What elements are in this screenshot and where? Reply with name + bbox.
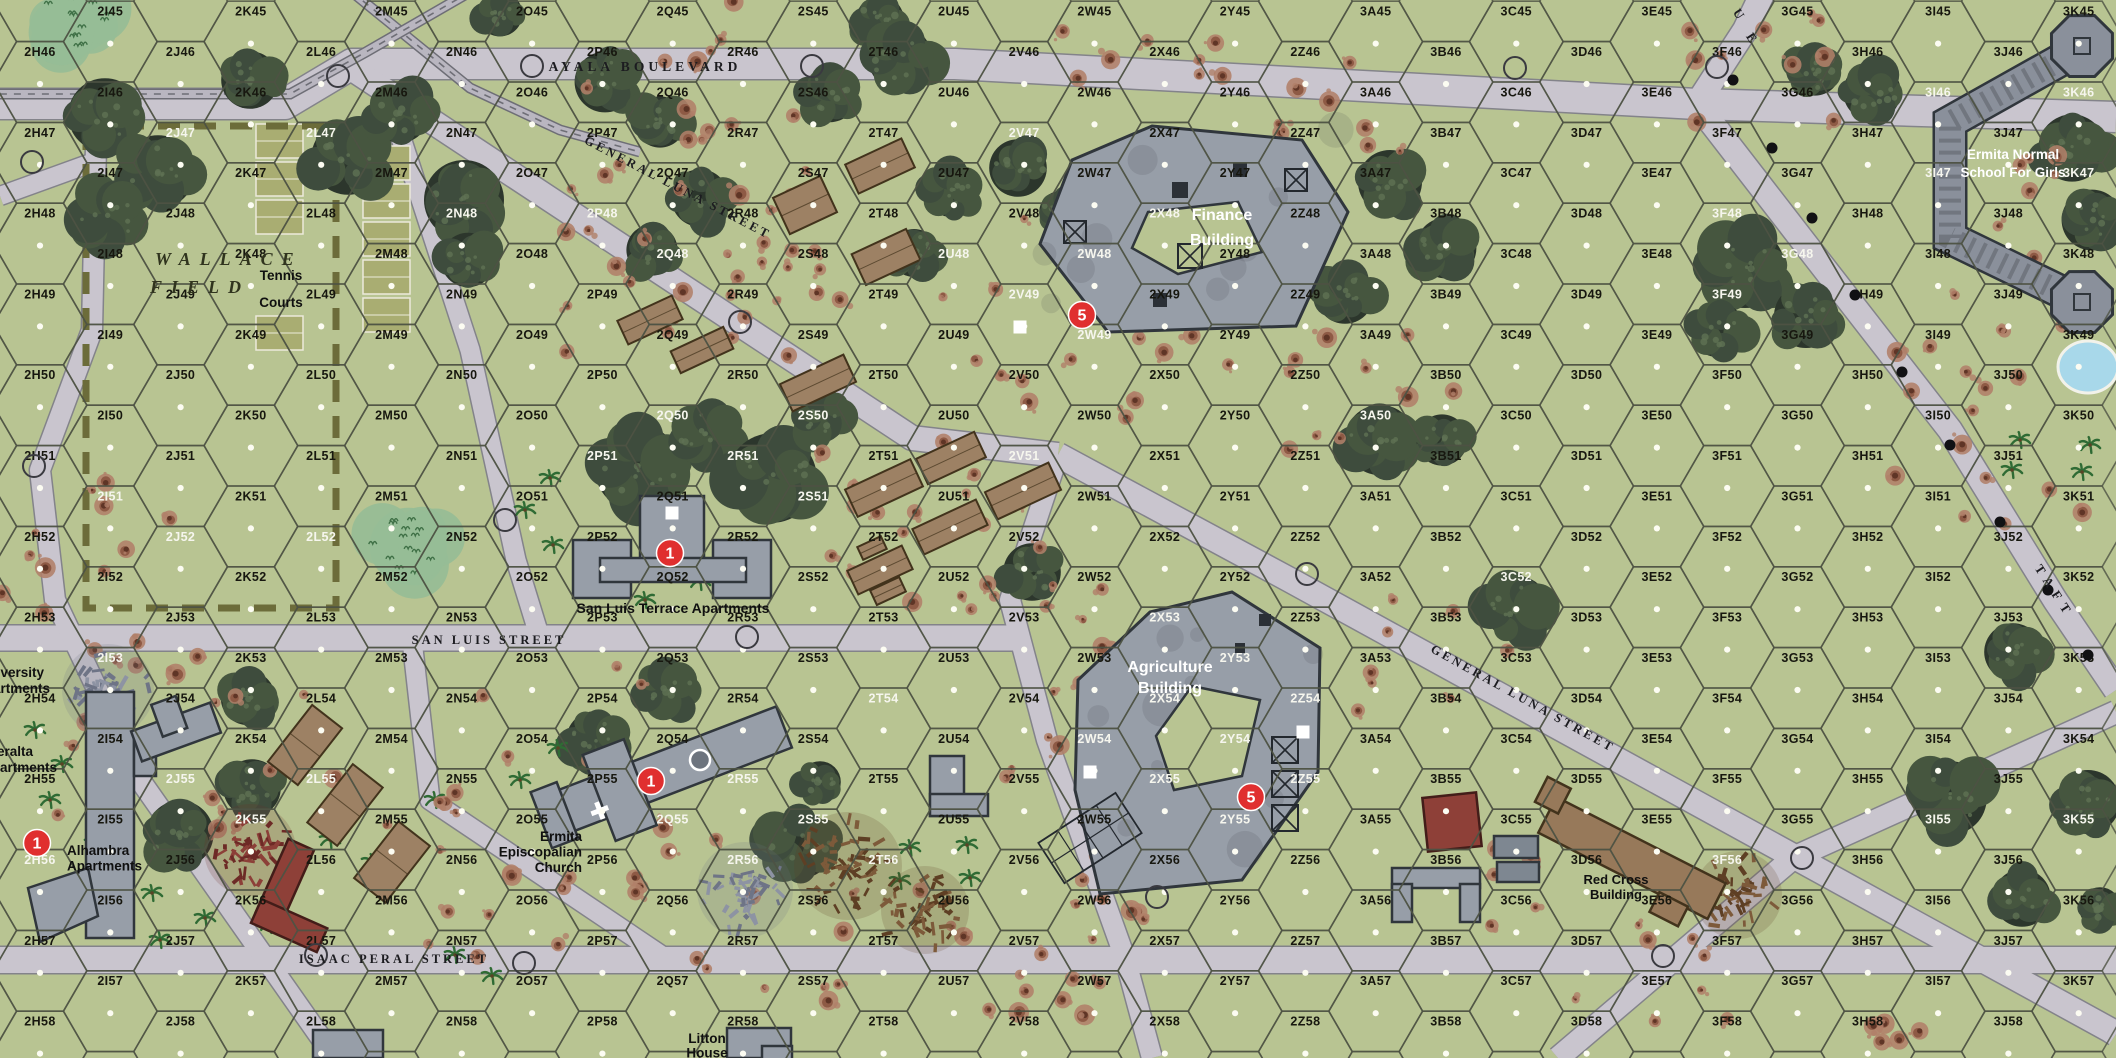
- tree-highlight: [2090, 217, 2097, 224]
- hex-center-dot: [318, 889, 324, 895]
- hex-label-3K54: 3K54: [2063, 732, 2094, 746]
- tree-highlight: [1393, 437, 1398, 442]
- hex-center-dot: [1443, 162, 1449, 168]
- litton-house[interactable]: [727, 1028, 792, 1058]
- school-label: School For Girls: [1960, 165, 2065, 180]
- shell-speck: [1759, 37, 1765, 43]
- hex-label-2N51: 2N51: [446, 449, 477, 463]
- hex-center-dot: [1794, 768, 1800, 774]
- hex-center-dot: [1443, 485, 1449, 491]
- hex-label-3I46: 3I46: [1925, 85, 1951, 99]
- stone-mottle: [1190, 627, 1204, 641]
- tree-highlight: [1343, 288, 1349, 294]
- tree-highlight: [2007, 659, 2014, 666]
- hex-center-dot: [599, 566, 605, 572]
- shell-speck: [1914, 392, 1918, 396]
- rubble-bit: [111, 682, 118, 684]
- tree-highlight: [265, 793, 270, 798]
- tree-highlight: [904, 72, 909, 77]
- shell-speck: [852, 479, 857, 484]
- hex-center-dot: [1443, 970, 1449, 976]
- hex-center-dot: [1443, 566, 1449, 572]
- shell-core: [1076, 76, 1081, 81]
- hex-label-3H58: 3H58: [1852, 1015, 1883, 1029]
- hex-center-dot: [1162, 485, 1168, 491]
- rubble-bit: [738, 882, 750, 884]
- hex-center-dot: [1162, 727, 1168, 733]
- tree-highlight: [818, 779, 822, 783]
- hex-label-3I50: 3I50: [1925, 409, 1951, 423]
- hex-center-dot: [1584, 162, 1590, 168]
- hex-label-3H53: 3H53: [1852, 611, 1883, 625]
- hex-center-dot: [388, 41, 394, 47]
- black-dot-icon: [1728, 75, 1739, 86]
- hex-label-2O57: 2O57: [516, 974, 548, 988]
- tree-foliage: [180, 810, 206, 836]
- hex-center-dot: [459, 889, 465, 895]
- hex-center-dot: [740, 485, 746, 491]
- hex-label-3H57: 3H57: [1852, 934, 1883, 948]
- objective-marker-1[interactable]: 1: [24, 830, 51, 857]
- shell-speck: [1359, 716, 1363, 720]
- hex-label-2Y52: 2Y52: [1220, 570, 1251, 584]
- hex-label-2T52: 2T52: [869, 530, 899, 544]
- hex-center-dot: [740, 243, 746, 249]
- hex-label-2H52: 2H52: [24, 530, 55, 544]
- hex-center-dot: [670, 202, 676, 208]
- tree-highlight: [763, 479, 769, 485]
- hex-label-3B48: 3B48: [1430, 207, 1461, 221]
- hex-label-3A53: 3A53: [1360, 651, 1391, 665]
- hex-center-dot: [2005, 1051, 2011, 1057]
- church-label: Church: [535, 860, 582, 875]
- hex-label-2U45: 2U45: [938, 5, 969, 19]
- shell-speck: [1887, 1042, 1893, 1048]
- rubble-bit: [744, 905, 746, 913]
- hex-center-dot: [37, 1051, 43, 1057]
- tree-highlight: [594, 739, 598, 743]
- objective-marker-5[interactable]: 5: [1238, 784, 1265, 811]
- tree-highlight: [1033, 575, 1037, 579]
- hex-center-dot: [529, 1010, 535, 1016]
- tree-highlight: [2020, 643, 2024, 647]
- shell-speck: [622, 170, 626, 174]
- shell-speck: [1815, 52, 1821, 58]
- shell-core: [1996, 224, 1999, 227]
- tree-highlight: [1963, 791, 1969, 797]
- hex-center-dot: [1162, 970, 1168, 976]
- map-canvas[interactable]: 2H462H472H482H492H502H512H522H532H542H55…: [0, 0, 2116, 1058]
- shell-speck: [868, 516, 872, 520]
- shell-speck: [784, 258, 790, 264]
- hex-label-3H48: 3H48: [1852, 207, 1883, 221]
- hex-label-3I49: 3I49: [1925, 328, 1951, 342]
- hex-center-dot: [1724, 485, 1730, 491]
- shell-core: [972, 473, 976, 477]
- hex-center-dot: [1162, 1051, 1168, 1057]
- shell-core: [1822, 54, 1828, 60]
- tree-highlight: [170, 829, 176, 835]
- tree-highlight: [1877, 90, 1884, 97]
- hex-label-2Q50: 2Q50: [657, 409, 689, 423]
- shell-core: [1896, 1037, 1902, 1043]
- shell-core: [790, 248, 795, 253]
- shell-core: [0, 590, 5, 595]
- hex-label-2S50: 2S50: [798, 409, 829, 423]
- white-square-icon: [1014, 321, 1027, 334]
- shell-hole-icon: [970, 354, 983, 367]
- tree-highlight: [2034, 649, 2040, 655]
- tree-highlight: [833, 414, 837, 418]
- tree-highlight: [2084, 138, 2091, 145]
- tree-highlight: [808, 787, 815, 794]
- shell-hole-icon: [677, 99, 697, 119]
- hex-center-dot: [37, 566, 43, 572]
- shell-core: [1534, 906, 1537, 909]
- wallace-field-label: WALLACE: [155, 249, 303, 269]
- shell-speck: [834, 1002, 841, 1009]
- hex-label-2W46: 2W46: [1077, 85, 1111, 99]
- tree-highlight: [965, 184, 970, 189]
- rubble-bit: [244, 867, 245, 881]
- shell-speck: [1961, 512, 1966, 517]
- hex-center-dot: [1865, 243, 1871, 249]
- stone-mottle: [1033, 242, 1057, 266]
- white-square-icon: [1084, 766, 1097, 779]
- hex-center-dot: [1373, 364, 1379, 370]
- redcross-label: Red Cross: [1583, 872, 1648, 887]
- shell-core: [1293, 358, 1298, 363]
- hex-center-dot: [1091, 41, 1097, 47]
- objective-marker-1[interactable]: 1: [657, 540, 684, 567]
- shell-core: [509, 873, 515, 879]
- shell-core: [1909, 388, 1914, 393]
- hex-label-2T53: 2T53: [869, 611, 899, 625]
- shell-hole-icon: [117, 540, 135, 558]
- tree-highlight: [1493, 607, 1497, 611]
- shell-core: [91, 489, 94, 492]
- tree-highlight: [447, 267, 454, 274]
- agriculture-label: Building: [1138, 680, 1202, 697]
- hex-center-dot: [810, 121, 816, 127]
- shell-speck: [791, 117, 796, 122]
- shell-speck: [132, 633, 138, 639]
- objects-3c55[interactable]: [1494, 836, 1539, 882]
- shell-core: [1081, 618, 1084, 621]
- hex-label-2X49: 2X49: [1149, 287, 1180, 301]
- hex-label-2N46: 2N46: [446, 45, 477, 59]
- hex-label-2Q45: 2Q45: [657, 5, 689, 19]
- hex-label-2P49: 2P49: [587, 287, 618, 301]
- shell-core: [826, 998, 832, 1004]
- hex-label-2M50: 2M50: [375, 409, 408, 423]
- tree-highlight: [1367, 425, 1374, 432]
- tree-highlight: [1762, 249, 1766, 253]
- tree-highlight: [1811, 67, 1814, 70]
- hex-label-3K52: 3K52: [2063, 570, 2094, 584]
- palm-trunk: [548, 476, 552, 480]
- hex-label-2T48: 2T48: [869, 207, 899, 221]
- rubble-bit: [896, 905, 906, 906]
- hex-label-2U55: 2U55: [938, 813, 969, 827]
- hex-center-dot: [2076, 929, 2082, 935]
- hex-center-dot: [1865, 485, 1871, 491]
- shell-core: [1691, 937, 1695, 941]
- black-dot-icon: [1897, 367, 1908, 378]
- hex-label-3E47: 3E47: [1642, 166, 1673, 180]
- hex-label-3G51: 3G51: [1781, 489, 1813, 503]
- rubble-bit: [858, 839, 870, 840]
- hex-center-dot: [459, 647, 465, 653]
- tree-highlight: [789, 855, 795, 861]
- hex-center-dot: [1584, 485, 1590, 491]
- hex-label-2N56: 2N56: [446, 853, 477, 867]
- hex-center-dot: [1794, 606, 1800, 612]
- hex-label-3F50: 3F50: [1712, 368, 1742, 382]
- shell-speck: [1492, 927, 1498, 933]
- hex-center-dot: [1865, 162, 1871, 168]
- hex-label-2Y51: 2Y51: [1220, 489, 1251, 503]
- hex-center-dot: [2076, 121, 2082, 127]
- hex-center-dot: [1232, 525, 1238, 531]
- tree-highlight: [126, 229, 130, 233]
- shell-speck: [1032, 410, 1036, 414]
- hex-center-dot: [1794, 202, 1800, 208]
- shell-speck: [1369, 667, 1373, 671]
- hex-label-3E50: 3E50: [1642, 409, 1673, 423]
- hex-center-dot: [1021, 808, 1027, 814]
- shell-speck: [1131, 391, 1136, 396]
- tree-highlight: [1732, 321, 1736, 325]
- hex-label-3H52: 3H52: [1852, 530, 1883, 544]
- shell-core: [1399, 149, 1401, 151]
- hex-center-dot: [599, 970, 605, 976]
- hex-label-3A45: 3A45: [1360, 5, 1391, 19]
- hex-label-2Y56: 2Y56: [1220, 893, 1251, 907]
- university-label2: Apartments: [0, 681, 50, 696]
- hex-center-dot: [2005, 323, 2011, 329]
- hex-label-2H47: 2H47: [24, 126, 55, 140]
- hex-label-2P58: 2P58: [587, 1015, 618, 1029]
- hex-center-dot: [599, 647, 605, 653]
- tree-highlight: [708, 437, 713, 442]
- hex-label-3D51: 3D51: [1571, 449, 1602, 463]
- shell-core: [829, 554, 833, 558]
- shell-speck: [700, 138, 705, 143]
- hex-label-2J48: 2J48: [166, 207, 195, 221]
- hex-center-dot: [881, 323, 887, 329]
- tree-highlight: [794, 469, 798, 473]
- hex-center-dot: [529, 364, 535, 370]
- hex-label-2Y54: 2Y54: [1220, 732, 1251, 746]
- objective-marker-1[interactable]: 1: [638, 768, 665, 795]
- shell-speck: [238, 699, 244, 705]
- shell-speck: [1395, 386, 1402, 393]
- rubble-bit: [944, 911, 949, 914]
- black-dot-icon: [1945, 440, 1956, 451]
- tree-highlight: [80, 217, 84, 221]
- hex-center-dot: [2005, 647, 2011, 653]
- objective-marker-5[interactable]: 5: [1069, 302, 1096, 329]
- hex-label-3I57: 3I57: [1925, 974, 1951, 988]
- hex-label-2K53: 2K53: [235, 651, 266, 665]
- hex-label-2W49: 2W49: [1077, 328, 1111, 342]
- hex-label-2P57: 2P57: [587, 934, 618, 948]
- hex-label-2T58: 2T58: [869, 1015, 899, 1029]
- hex-label-3F51: 3F51: [1712, 449, 1742, 463]
- shell-speck: [2045, 494, 2049, 498]
- tree-highlight: [1003, 157, 1010, 164]
- tree-highlight: [113, 123, 118, 128]
- shell-speck: [1690, 123, 1694, 127]
- hex-label-3D56: 3D56: [1571, 853, 1602, 867]
- tree-highlight: [1495, 596, 1501, 602]
- hex-center-dot: [178, 81, 184, 87]
- hex-center-dot: [810, 768, 816, 774]
- shell-speck: [758, 247, 765, 254]
- hex-center-dot: [881, 727, 887, 733]
- hex-center-dot: [1302, 323, 1308, 329]
- hex-label-2X56: 2X56: [1149, 853, 1180, 867]
- hex-label-3C48: 3C48: [1501, 247, 1532, 261]
- hex-center-dot: [37, 727, 43, 733]
- hex-center-dot: [1302, 647, 1308, 653]
- hex-center-dot: [248, 525, 254, 531]
- hex-center-dot: [1654, 445, 1660, 451]
- shell-core: [1364, 366, 1367, 369]
- hex-center-dot: [670, 283, 676, 289]
- street-label-3: SAN LUIS STREET: [412, 633, 567, 647]
- hex-label-2T55: 2T55: [869, 772, 899, 786]
- tree-highlight: [2099, 232, 2102, 235]
- black-dot-icon: [1850, 290, 1861, 301]
- rubble-bit: [868, 879, 872, 882]
- hex-center-dot: [881, 647, 887, 653]
- hex-center-dot: [2076, 445, 2082, 451]
- rubble-bit: [708, 882, 710, 895]
- shell-hole-icon: [1286, 78, 1306, 98]
- hex-center-dot: [810, 1010, 816, 1016]
- hex-center-dot: [1724, 970, 1730, 976]
- shell-core: [1039, 952, 1043, 956]
- hex-center-dot: [1091, 121, 1097, 127]
- palm-trunk: [2010, 468, 2014, 472]
- shell-hole-icon: [607, 257, 626, 276]
- hex-center-dot: [599, 727, 605, 733]
- black-dot-icon: [1807, 213, 1818, 224]
- hex-center-dot: [2005, 889, 2011, 895]
- shell-core: [1983, 386, 1988, 391]
- hex-label-3G47: 3G47: [1781, 166, 1813, 180]
- shell-speck: [1199, 67, 1202, 70]
- hex-label-2U53: 2U53: [938, 651, 969, 665]
- hex-center-dot: [951, 121, 957, 127]
- hex-label-2U56: 2U56: [938, 893, 969, 907]
- hex-label-2R49: 2R49: [727, 287, 758, 301]
- tree-highlight: [602, 466, 608, 472]
- tree-highlight: [2020, 896, 2025, 901]
- hex-label-2R47: 2R47: [727, 126, 758, 140]
- shell-core: [567, 875, 571, 879]
- rubble-bit: [838, 868, 847, 869]
- hex-label-3K45: 3K45: [2063, 5, 2094, 19]
- hex-center-dot: [459, 162, 465, 168]
- shell-core: [587, 229, 590, 232]
- hex-label-2K46: 2K46: [235, 85, 266, 99]
- rubble-bit: [1742, 893, 1756, 894]
- tree-highlight: [1877, 99, 1883, 105]
- tree-highlight: [244, 703, 249, 708]
- stone-mottle: [1206, 277, 1229, 300]
- hex-label-2I50: 2I50: [97, 409, 123, 423]
- white-square-icon: [1297, 726, 1310, 739]
- tree-highlight: [1018, 551, 1024, 557]
- hex-center-dot: [2076, 1010, 2082, 1016]
- hex-label-2X51: 2X51: [1149, 449, 1180, 463]
- tree-highlight: [703, 431, 708, 436]
- hex-center-dot: [1584, 808, 1590, 814]
- tree-highlight: [1808, 308, 1814, 314]
- tree-highlight: [1398, 183, 1404, 189]
- hex-label-2R46: 2R46: [727, 45, 758, 59]
- hex-label-3A52: 3A52: [1360, 570, 1391, 584]
- tree-highlight: [607, 737, 610, 740]
- hex-label-2P56: 2P56: [587, 853, 618, 867]
- tree-highlight: [133, 109, 139, 115]
- tree-highlight: [236, 61, 242, 67]
- hex-center-dot: [2005, 808, 2011, 814]
- shell-core: [72, 744, 76, 748]
- hex-center-dot: [1162, 323, 1168, 329]
- shell-speck: [1990, 477, 1996, 483]
- hex-label-2N47: 2N47: [446, 126, 477, 140]
- shell-core: [1984, 476, 1988, 480]
- tree-highlight: [401, 127, 407, 133]
- shell-core: [838, 297, 843, 302]
- shell-speck: [1867, 1034, 1871, 1038]
- hex-center-dot: [1091, 283, 1097, 289]
- hex-center-dot: [1232, 445, 1238, 451]
- hex-center-dot: [1021, 243, 1027, 249]
- shell-speck: [1075, 615, 1080, 620]
- shell-speck: [614, 662, 620, 668]
- shell-core: [446, 909, 450, 913]
- hex-center-dot: [1443, 889, 1449, 895]
- objects-3c55-block: [1497, 862, 1539, 882]
- shell-speck: [915, 517, 921, 523]
- shell-speck: [936, 436, 940, 440]
- tree-highlight: [646, 125, 650, 129]
- hex-center-dot: [1724, 808, 1730, 814]
- shell-speck: [983, 591, 986, 594]
- hex-center-dot: [178, 404, 184, 410]
- hex-center-dot: [1584, 81, 1590, 87]
- hex-center-dot: [37, 404, 43, 410]
- hex-center-dot: [1935, 606, 1941, 612]
- hex-label-2M51: 2M51: [375, 489, 408, 503]
- hex-center-dot: [1935, 687, 1941, 693]
- hex-center-dot: [1373, 41, 1379, 47]
- stone-mottle: [1156, 624, 1183, 651]
- hex-center-dot: [2005, 404, 2011, 410]
- hex-center-dot: [1935, 364, 1941, 370]
- hex-center-dot: [881, 970, 887, 976]
- hex-center-dot: [529, 283, 535, 289]
- hex-center-dot: [107, 1010, 113, 1016]
- hex-center-dot: [318, 566, 324, 572]
- hex-center-dot: [810, 929, 816, 935]
- hex-center-dot: [881, 81, 887, 87]
